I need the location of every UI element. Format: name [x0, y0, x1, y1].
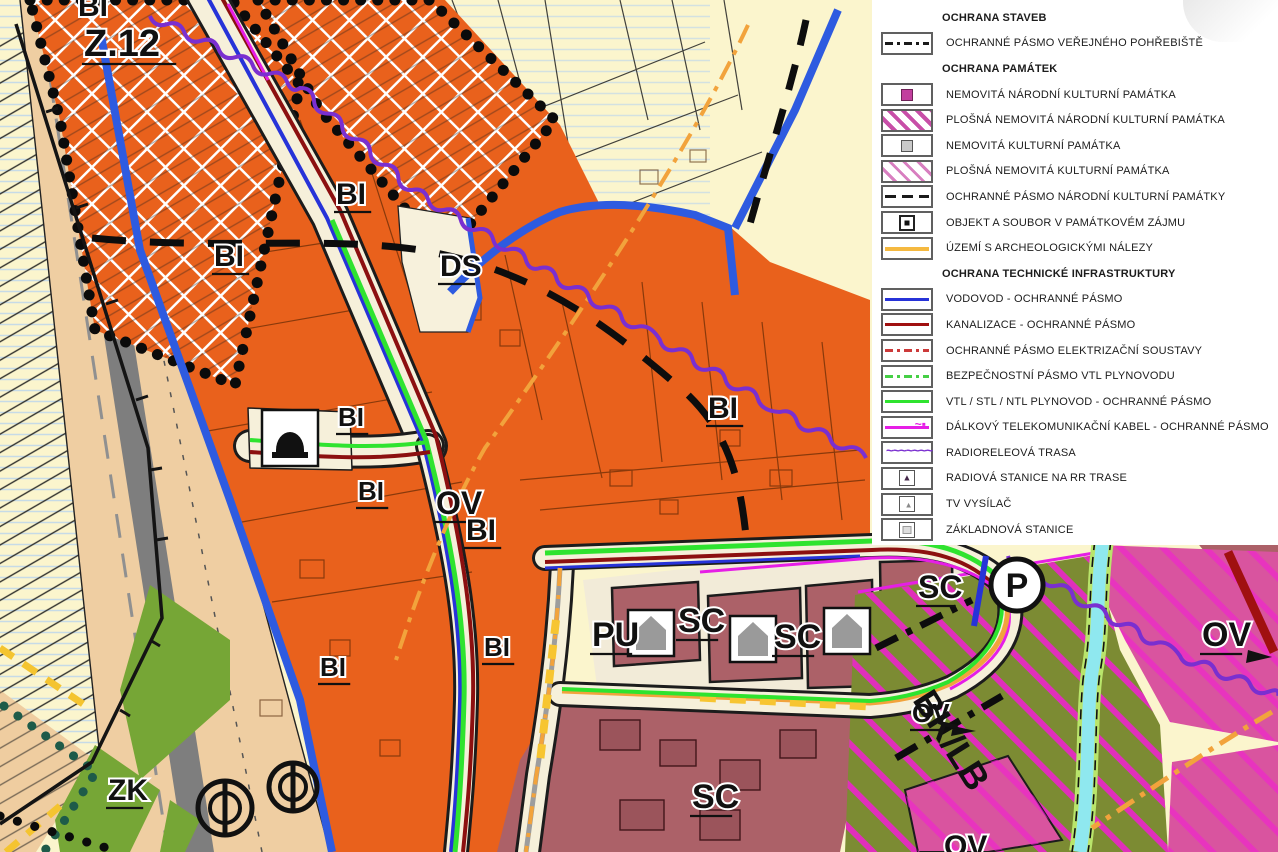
legend-symbol-box-magenta-square	[881, 83, 933, 106]
legend-label: OCHRANA STAVEB	[942, 12, 1047, 24]
legend-symbol-hatch-magenta	[881, 109, 933, 132]
legend-row: OCHRANNÉ PÁSMO NÁRODNÍ KULTURNÍ PAMÁTKY	[872, 184, 1278, 210]
legend-row: OCHRANNÉ PÁSMO ELEKTRIZAČNÍ SOUSTAVY	[872, 338, 1278, 364]
legend-row: KANALIZACE - OCHRANNÉ PÁSMO	[872, 312, 1278, 338]
legend-row: ZÁKLADNOVÁ STANICE	[872, 517, 1278, 543]
legend-symbol-line-line-orange	[881, 237, 933, 260]
zone-label-BI: BI	[320, 652, 346, 682]
zone-label-BI: BI	[78, 0, 108, 23]
legend-row: ÚZEMÍ S ARCHEOLOGICKÝMI NÁLEZY	[872, 235, 1278, 261]
parking-icon: P	[991, 559, 1043, 611]
zone-label-BI: BI	[466, 514, 496, 547]
zone-label-BI: BI	[484, 632, 510, 662]
zone-label-OV: OV	[944, 830, 987, 852]
legend-symbol-line-dash-black	[881, 185, 933, 208]
zone-label-DS: DS	[440, 250, 482, 283]
legend-row: PLOŠNÁ NEMOVITÁ KULTURNÍ PAMÁTKA	[872, 159, 1278, 185]
zone-label-BI: BI	[336, 178, 366, 211]
zone-label-BI: BI	[214, 240, 244, 273]
zone-label-SC: SC	[692, 778, 739, 816]
house-monument-icon	[730, 616, 776, 662]
legend-label: KANALIZACE - OCHRANNÉ PÁSMO	[946, 319, 1135, 331]
legend-row: OBJEKT A SOUBOR V PAMÁTKOVÉM ZÁJMU	[872, 210, 1278, 236]
legend-label: ZÁKLADNOVÁ STANICE	[946, 524, 1073, 536]
legend-symbol-box-black-dot	[881, 211, 933, 234]
legend-symbol-box-base	[881, 518, 933, 541]
zone-label-OV: OV	[1202, 616, 1251, 654]
legend-label: DÁLKOVÝ TELEKOMUNIKAČNÍ KABEL - OCHRANNÉ…	[946, 421, 1269, 433]
legend-symbol-wavy-purple	[881, 441, 933, 464]
legend-section-header: OCHRANA PAMÁTEK	[872, 56, 1278, 82]
legend-label: TV VYSÍLAČ	[946, 498, 1012, 510]
zone-label-BI: BI	[358, 476, 384, 506]
legend-symbol-line-dashdot-green	[881, 365, 933, 388]
legend-label: VTL / STL / NTL PLYNOVOD - OCHRANNÉ PÁSM…	[946, 396, 1211, 408]
legend-symbol-hatch-magenta-light	[881, 160, 933, 183]
legend-label: ÚZEMÍ S ARCHEOLOGICKÝMI NÁLEZY	[946, 242, 1153, 254]
zone-label-BI: BI	[708, 392, 738, 425]
zone-label-ZK: ZK	[108, 774, 148, 807]
legend-label: NEMOVITÁ NÁRODNÍ KULTURNÍ PAMÁTKA	[946, 89, 1176, 101]
legend-label: OCHRANA TECHNICKÉ INFRASTRUKTURY	[942, 268, 1176, 280]
legend-label: NEMOVITÁ KULTURNÍ PAMÁTKA	[946, 140, 1121, 152]
zone-label-PU: PU	[592, 616, 639, 654]
legend-label: OCHRANA PAMÁTEK	[942, 63, 1057, 75]
legend-rows: OCHRANA STAVEBOCHRANNÉ PÁSMO VEŘEJNÉHO P…	[872, 5, 1278, 542]
legend-symbol-box-antenna	[881, 467, 933, 490]
legend-row: DÁLKOVÝ TELEKOMUNIKAČNÍ KABEL - OCHRANNÉ…	[872, 415, 1278, 441]
zone-label-SC: SC	[678, 602, 725, 640]
legend-row: RADIOVÁ STANICE NA RR TRASE	[872, 466, 1278, 492]
legend-label: BEZPEČNOSTNÍ PÁSMO VTL PLYNOVODU	[946, 370, 1175, 382]
legend-label: VODOVOD - OCHRANNÉ PÁSMO	[946, 293, 1123, 305]
legend-row: RADIORELEOVÁ TRASA	[872, 440, 1278, 466]
zone-label-BI: BI	[338, 402, 364, 432]
zone-label-Z12: Z.12	[84, 23, 160, 65]
legend-label: OCHRANNÉ PÁSMO ELEKTRIZAČNÍ SOUSTAVY	[946, 345, 1202, 357]
legend-panel: OCHRANA STAVEBOCHRANNÉ PÁSMO VEŘEJNÉHO P…	[872, 0, 1278, 545]
legend-label: RADIOVÁ STANICE NA RR TRASE	[946, 472, 1127, 484]
legend-row: BEZPEČNOSTNÍ PÁSMO VTL PLYNOVODU	[872, 363, 1278, 389]
legend-label: OBJEKT A SOUBOR V PAMÁTKOVÉM ZÁJMU	[946, 217, 1185, 229]
legend-symbol-box-tv	[881, 493, 933, 516]
legend-label: RADIORELEOVÁ TRASA	[946, 447, 1076, 459]
legend-label: PLOŠNÁ NEMOVITÁ KULTURNÍ PAMÁTKA	[946, 165, 1170, 177]
zoning-map-viewer: P BIZ.12BIBIDSBIBIBIOVBIBIBIPUSCSCSCSCZK…	[0, 0, 1278, 852]
legend-row: TV VYSÍLAČ	[872, 491, 1278, 517]
legend-label: OCHRANNÉ PÁSMO VEŘEJNÉHO POHŘEBIŠTĚ	[946, 37, 1203, 49]
legend-row: VTL / STL / NTL PLYNOVOD - OCHRANNÉ PÁSM…	[872, 389, 1278, 415]
zone-label-SC: SC	[918, 569, 962, 605]
church-monument-icon	[262, 410, 318, 466]
legend-row: VODOVOD - OCHRANNÉ PÁSMO	[872, 287, 1278, 313]
legend-label: OCHRANNÉ PÁSMO NÁRODNÍ KULTURNÍ PAMÁTKY	[946, 191, 1225, 203]
legend-symbol-box-gray-square	[881, 134, 933, 157]
house-monument-icon	[824, 608, 870, 654]
legend-symbol-line-line-green	[881, 390, 933, 413]
parking-icon-letter: P	[1006, 567, 1029, 605]
legend-label: PLOŠNÁ NEMOVITÁ NÁRODNÍ KULTURNÍ PAMÁTKA	[946, 114, 1225, 126]
legend-row: NEMOVITÁ KULTURNÍ PAMÁTKA	[872, 133, 1278, 159]
legend-symbol-line-line-darkred	[881, 313, 933, 336]
legend-symbol-line-dashdot-black	[881, 32, 933, 55]
legend-symbol-line-line-blue	[881, 288, 933, 311]
legend-section-header: OCHRANA TECHNICKÉ INFRASTRUKTURY	[872, 261, 1278, 287]
legend-row: PLOŠNÁ NEMOVITÁ NÁRODNÍ KULTURNÍ PAMÁTKA	[872, 107, 1278, 133]
legend-symbol-line-magenta-wave	[881, 416, 933, 439]
legend-symbol-line-dashdot-red	[881, 339, 933, 362]
legend-row: NEMOVITÁ NÁRODNÍ KULTURNÍ PAMÁTKA	[872, 82, 1278, 108]
zone-label-SC: SC	[774, 618, 821, 656]
